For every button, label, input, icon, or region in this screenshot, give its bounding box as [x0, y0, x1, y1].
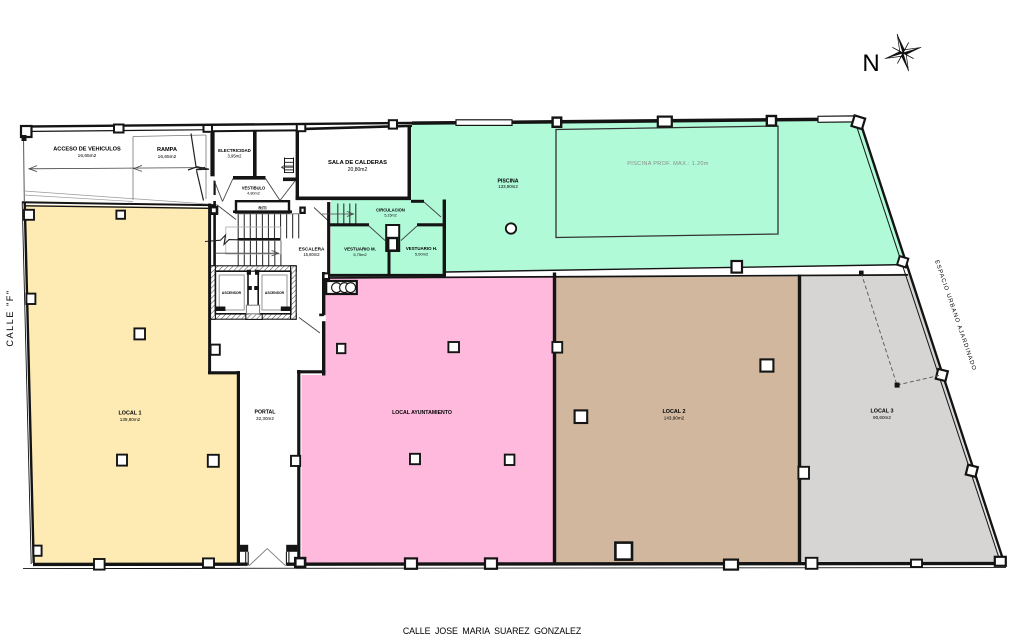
svg-text:VESTIBULO: VESTIBULO [242, 186, 266, 191]
svg-text:LOCAL AYUNTAMIENTO: LOCAL AYUNTAMIENTO [392, 410, 452, 416]
svg-text:SALA DE CALDERAS: SALA DE CALDERAS [328, 160, 387, 166]
svg-text:CALLE JOSE MARIA SUAREZ GO: CALLE JOSE MARIA SUAREZ GONZALEZ [403, 626, 582, 636]
svg-text:32,30m2: 32,30m2 [256, 416, 274, 421]
svg-text:139,80m2: 139,80m2 [120, 417, 141, 422]
svg-text:5,75m2: 5,75m2 [353, 252, 367, 257]
svg-text:4,80m2: 4,80m2 [247, 191, 260, 195]
svg-text:LOCAL 1: LOCAL 1 [119, 411, 142, 417]
svg-text:143,90m2: 143,90m2 [664, 416, 685, 421]
svg-text:133,90m2: 133,90m2 [498, 184, 518, 189]
svg-text:5,15m2: 5,15m2 [384, 213, 396, 217]
svg-text:ELECTRICIDAD: ELECTRICIDAD [218, 148, 251, 153]
svg-text:20,80m2: 20,80m2 [348, 167, 368, 173]
svg-text:N: N [862, 50, 879, 77]
svg-text:PORTAL: PORTAL [255, 410, 277, 416]
svg-text:ESCALERA: ESCALERA [299, 247, 325, 252]
svg-text:5,00m2: 5,00m2 [415, 251, 429, 256]
svg-text:ASCENSOR: ASCENSOR [265, 291, 285, 295]
svg-text:ACCESO DE VEHICULOS: ACCESO DE VEHICULOS [53, 147, 121, 153]
svg-text:15,80m2: 15,80m2 [303, 252, 320, 257]
svg-text:CALLE "F": CALLE "F" [5, 289, 15, 346]
svg-text:ASCENSOR: ASCENSOR [222, 291, 242, 295]
svg-text:VESTUARIO H.: VESTUARIO H. [406, 246, 437, 251]
svg-text:VESTUARIO M.: VESTUARIO M. [344, 247, 376, 252]
svg-text:LOCAL 3: LOCAL 3 [871, 409, 894, 415]
svg-text:RITI: RITI [258, 205, 266, 210]
svg-text:16,65m2: 16,65m2 [158, 154, 177, 160]
svg-text:RAMPA: RAMPA [157, 147, 177, 153]
svg-text:16,65m2: 16,65m2 [78, 153, 97, 159]
svg-text:CIRCULACION: CIRCULACION [376, 208, 405, 213]
svg-text:PISCINA PROF. MAX.: 1.20m: PISCINA PROF. MAX.: 1.20m [627, 161, 709, 167]
svg-text:LOCAL 2: LOCAL 2 [663, 409, 686, 415]
svg-text:3,95m2: 3,95m2 [228, 154, 243, 159]
svg-text:90,60m2: 90,60m2 [873, 415, 891, 420]
